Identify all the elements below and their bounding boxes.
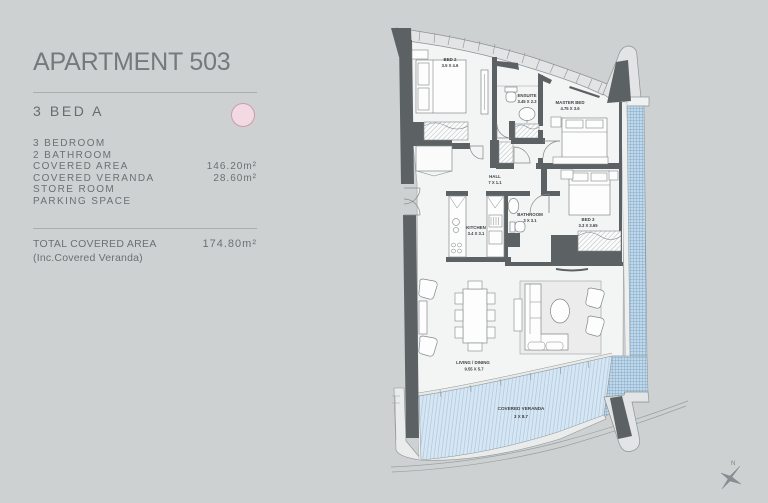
- svg-text:MASTER BED: MASTER BED: [555, 100, 584, 105]
- svg-text:3.4 X 3.1: 3.4 X 3.1: [468, 231, 485, 236]
- svg-text:3.45 X 2.2: 3.45 X 2.2: [517, 99, 537, 104]
- svg-text:3 X 8.7: 3 X 8.7: [514, 414, 528, 419]
- svg-text:3.5 X 4.6: 3.5 X 4.6: [442, 63, 459, 68]
- svg-text:COVERED VERANDA: COVERED VERANDA: [498, 406, 545, 411]
- svg-text:3 X 3.1: 3 X 3.1: [523, 218, 537, 223]
- svg-text:7 X 1.1: 7 X 1.1: [488, 180, 502, 185]
- svg-text:3.3 X 3.65: 3.3 X 3.65: [578, 223, 598, 228]
- svg-text:N: N: [731, 461, 735, 467]
- svg-text:BATHROOM: BATHROOM: [517, 212, 543, 217]
- svg-text:BED 3: BED 3: [582, 217, 595, 222]
- svg-text:LIVING / DINING: LIVING / DINING: [456, 360, 490, 365]
- svg-text:KITCHEN: KITCHEN: [466, 225, 486, 230]
- svg-text:ENSUITE: ENSUITE: [517, 93, 536, 98]
- svg-text:HALL: HALL: [489, 174, 501, 179]
- svg-text:BED 2: BED 2: [444, 57, 457, 62]
- svg-text:9.55 X 5.7: 9.55 X 5.7: [464, 367, 484, 372]
- svg-text:4.75 X 3.6: 4.75 X 3.6: [560, 106, 580, 111]
